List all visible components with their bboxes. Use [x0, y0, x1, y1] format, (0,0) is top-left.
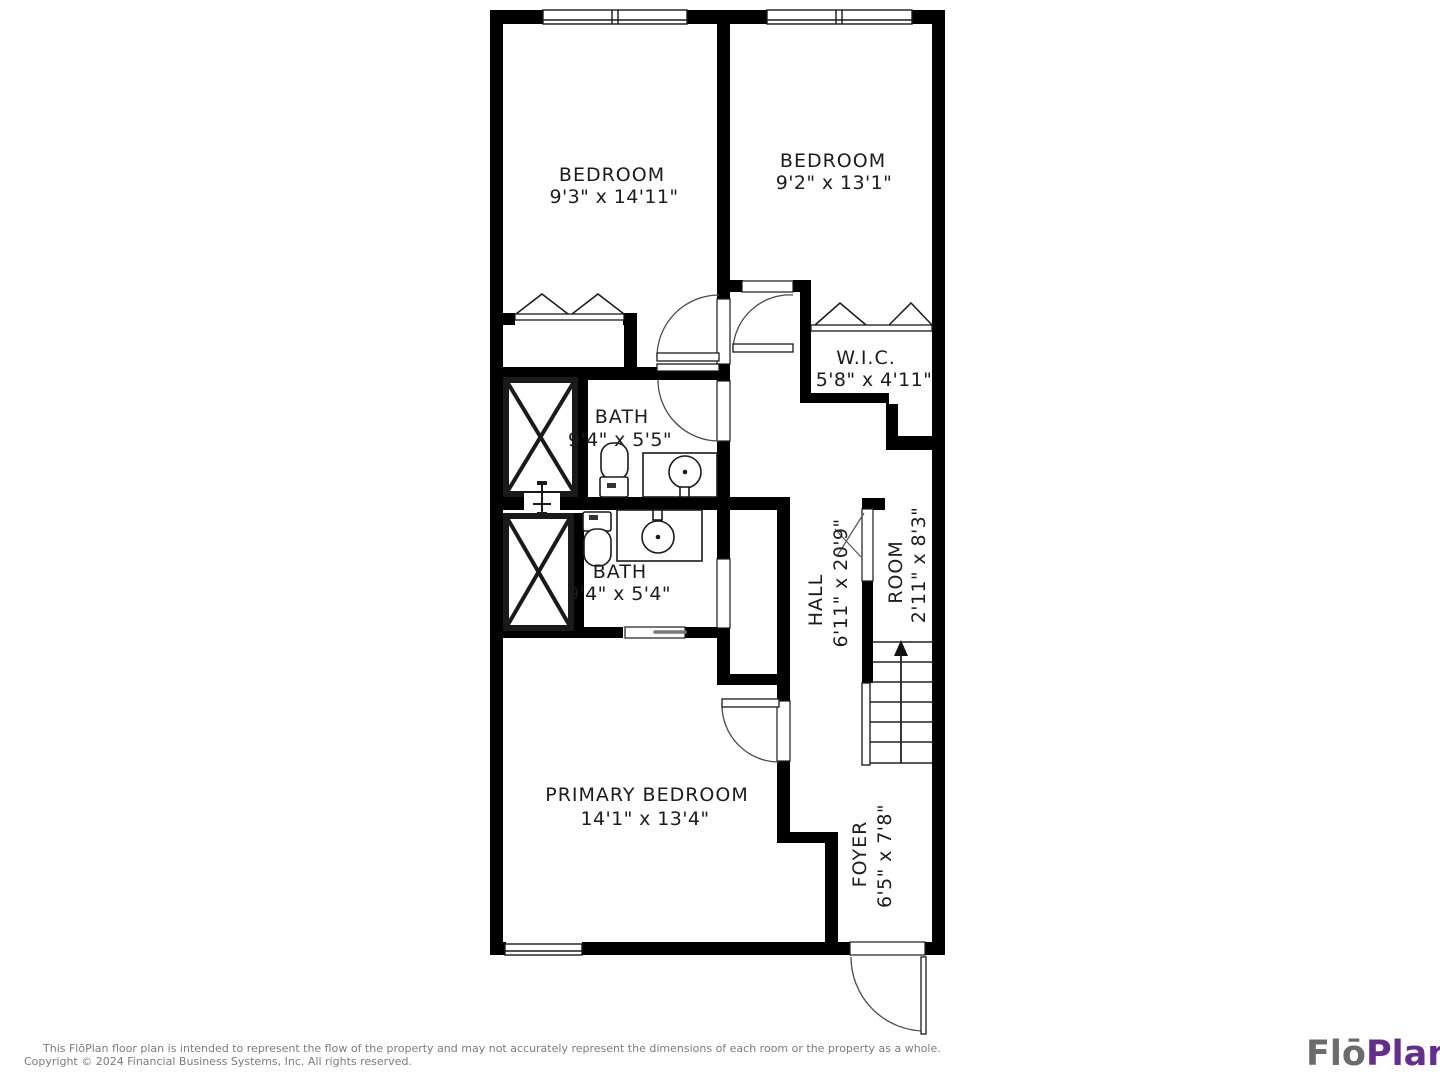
label-room-dims: 2'11" x 8'3" [908, 507, 930, 624]
wall-segment [490, 942, 506, 955]
doors [657, 295, 926, 1034]
wall-segment [717, 510, 730, 560]
label-bedroom2-name: BEDROOM [780, 150, 886, 172]
wall-segment [490, 10, 503, 955]
hanging-rod-icon [516, 294, 568, 314]
label-room-name: ROOM [885, 540, 907, 604]
window [505, 944, 582, 955]
wall-segment [800, 393, 889, 403]
entry-door-arc [851, 957, 925, 1031]
wall-segment [727, 280, 743, 292]
wic-doorway [889, 392, 932, 404]
wall-segment [862, 580, 873, 683]
door-leaf [733, 344, 793, 352]
label-wic-dims: 5'8" x 4'11" [816, 369, 933, 391]
sink-icon [643, 453, 717, 497]
hanging-rod-icon [889, 303, 932, 325]
wall-segment [503, 313, 515, 325]
window [543, 10, 687, 24]
toilet-icon [583, 512, 611, 566]
label-bath2-dims: 9'4" x 5'4" [567, 583, 671, 605]
wall-segment [800, 280, 811, 403]
door-leaf [657, 364, 719, 371]
passage-opening [862, 509, 873, 581]
label-hall-name: HALL [805, 574, 827, 626]
label-wic-name: W.I.C. [836, 347, 896, 369]
door-leaf [722, 699, 779, 707]
wall-segment [624, 313, 637, 367]
label-bedroom1-dims: 9'3" x 14'11" [550, 186, 679, 208]
label-foyer-name: FOYER [849, 821, 871, 888]
wall-segment [582, 942, 850, 955]
floor-plan: BEDROOM 9'3" x 14'11" BEDROOM 9'2" x 13'… [0, 0, 1440, 1080]
window [767, 10, 912, 24]
logo-flo: Flō [1306, 1034, 1366, 1074]
label-primary-dims: 14'1" x 13'4" [581, 808, 710, 830]
closet-front-line [811, 325, 932, 331]
wall-segment [925, 942, 945, 955]
floplan-logo: FlōPlan [1306, 1034, 1440, 1074]
floor-plan-page: BEDROOM 9'3" x 14'11" BEDROOM 9'2" x 13'… [0, 0, 1440, 1080]
label-hall: HALL 6'11" x 20'9" [805, 519, 852, 648]
wall-segment [886, 436, 945, 450]
label-bedroom1-name: BEDROOM [559, 164, 665, 186]
logo-plan: Plan [1366, 1034, 1440, 1074]
stair-stringer [862, 683, 870, 765]
closet-opening [717, 559, 730, 628]
wall-segment [862, 498, 885, 510]
sink-icon [617, 510, 702, 561]
wall-segment [777, 761, 790, 833]
wall-segment [717, 24, 730, 300]
label-bath1-dims: 9'4" x 5'5" [568, 429, 672, 451]
disclaimer-line1: This FlōPlan floor plan is intended to r… [43, 1042, 1440, 1055]
wall-segment [717, 674, 790, 685]
wall-segment [825, 832, 838, 955]
label-hall-dims: 6'11" x 20'9" [830, 519, 852, 648]
door-arc [733, 295, 793, 348]
wall-segment [932, 10, 945, 955]
door-opening [777, 701, 790, 761]
door-arc [722, 705, 779, 762]
label-foyer: FOYER 6'5" x 7'8" [849, 804, 896, 908]
label-bedroom2-dims: 9'2" x 13'1" [776, 172, 893, 194]
door-leaf [657, 353, 719, 361]
hanging-rod-icon [815, 303, 866, 325]
disclaimer-line2: Copyright © 2024 Financial Business Syst… [24, 1055, 1440, 1068]
wall-segment [573, 513, 584, 632]
toilet-icon [600, 443, 628, 497]
entry-door-leaf [921, 957, 926, 1034]
label-foyer-dims: 6'5" x 7'8" [874, 804, 896, 908]
footer: This FlōPlan floor plan is intended to r… [0, 1042, 1440, 1068]
hanging-rod-icon [572, 294, 624, 314]
door-arc [657, 295, 719, 357]
door-opening [717, 381, 730, 441]
entry-door-opening [850, 942, 925, 955]
wall-segment [687, 10, 767, 24]
label-primary-name: PRIMARY BEDROOM [545, 784, 748, 806]
closet-front-line [515, 314, 624, 320]
label-bath2-name: BATH [593, 561, 647, 583]
wall-segment [777, 500, 790, 690]
label-bath1-name: BATH [595, 406, 649, 428]
label-room: ROOM 2'11" x 8'3" [885, 507, 930, 624]
door-opening [742, 281, 793, 292]
